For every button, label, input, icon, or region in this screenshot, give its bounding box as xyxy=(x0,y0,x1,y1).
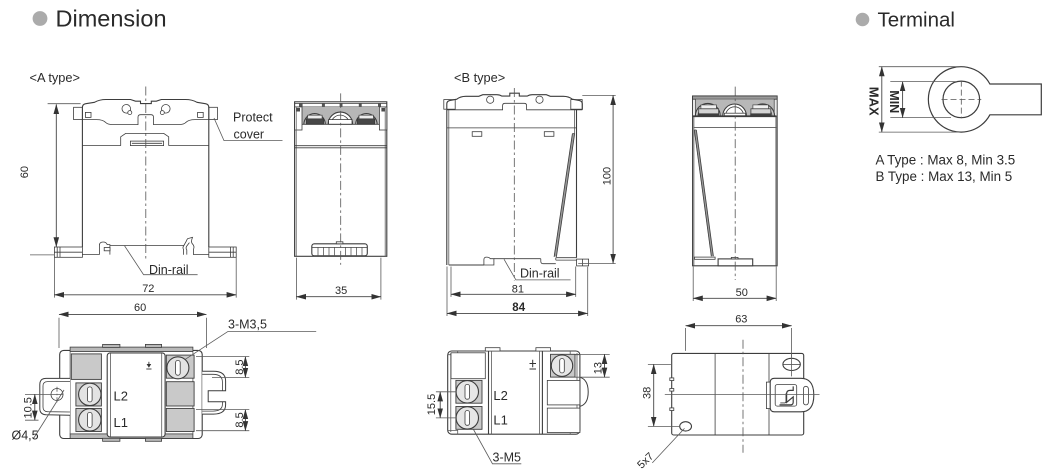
svg-text:5x7: 5x7 xyxy=(635,450,656,471)
svg-text:84: 84 xyxy=(512,302,525,314)
svg-text:MAX: MAX xyxy=(866,87,881,116)
svg-text:Terminal: Terminal xyxy=(878,9,955,32)
svg-text:8.5: 8.5 xyxy=(234,360,246,375)
svg-text:Dimension: Dimension xyxy=(56,6,167,32)
svg-text:3-M5: 3-M5 xyxy=(493,451,522,465)
svg-text:A Type : Max 8, Min 3.5: A Type : Max 8, Min 3.5 xyxy=(876,153,1016,168)
svg-text:B Type : Max 13, Min 5: B Type : Max 13, Min 5 xyxy=(876,169,1013,184)
svg-text:Ø4,5: Ø4,5 xyxy=(12,429,39,443)
svg-text:MIN: MIN xyxy=(887,90,901,113)
svg-text:100: 100 xyxy=(602,167,614,185)
svg-text:8.5: 8.5 xyxy=(234,412,246,427)
svg-text:35: 35 xyxy=(335,285,347,297)
svg-text:72: 72 xyxy=(142,283,154,295)
svg-text:Din-rail: Din-rail xyxy=(149,263,189,277)
svg-text:L1: L1 xyxy=(114,415,128,430)
svg-text:Din-rail: Din-rail xyxy=(520,267,560,281)
svg-text:13: 13 xyxy=(593,362,605,374)
svg-text:63: 63 xyxy=(735,314,747,326)
svg-text:L1: L1 xyxy=(493,413,507,428)
svg-text:10.5: 10.5 xyxy=(23,397,35,418)
svg-text:15.5: 15.5 xyxy=(426,394,438,415)
svg-text:L2: L2 xyxy=(493,388,507,403)
svg-text:81: 81 xyxy=(512,283,524,295)
svg-text:cover: cover xyxy=(234,128,265,142)
svg-text:50: 50 xyxy=(736,287,748,299)
svg-text:Protect: Protect xyxy=(233,111,273,125)
svg-text:<A type>: <A type> xyxy=(30,70,81,85)
svg-text:60: 60 xyxy=(19,166,31,178)
svg-text:L2: L2 xyxy=(114,388,128,403)
svg-text:60: 60 xyxy=(134,302,146,314)
svg-text:3-M3,5: 3-M3,5 xyxy=(228,318,267,332)
svg-text:<B type>: <B type> xyxy=(454,70,505,85)
svg-text:38: 38 xyxy=(642,387,654,399)
